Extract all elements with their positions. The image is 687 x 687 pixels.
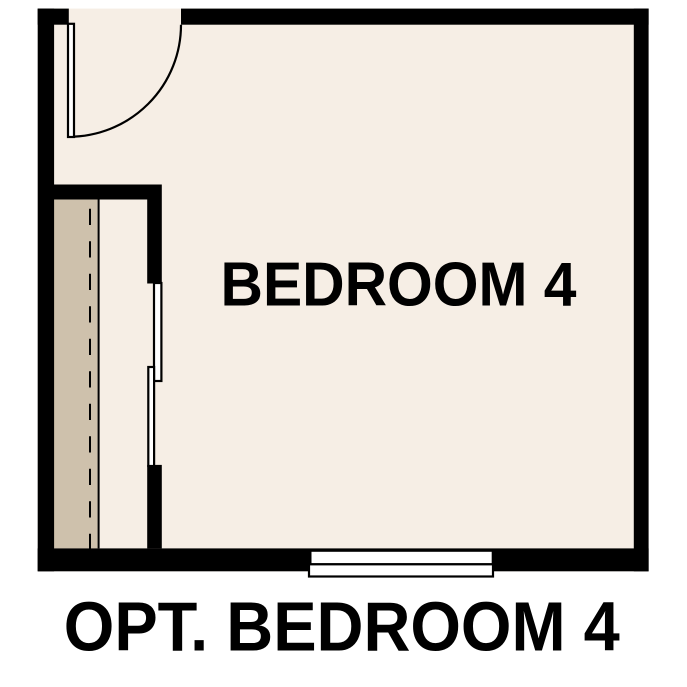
svg-text:BEDROOM 4: BEDROOM 4 (221, 251, 577, 320)
svg-text:OPT. BEDROOM 4: OPT. BEDROOM 4 (64, 588, 620, 666)
